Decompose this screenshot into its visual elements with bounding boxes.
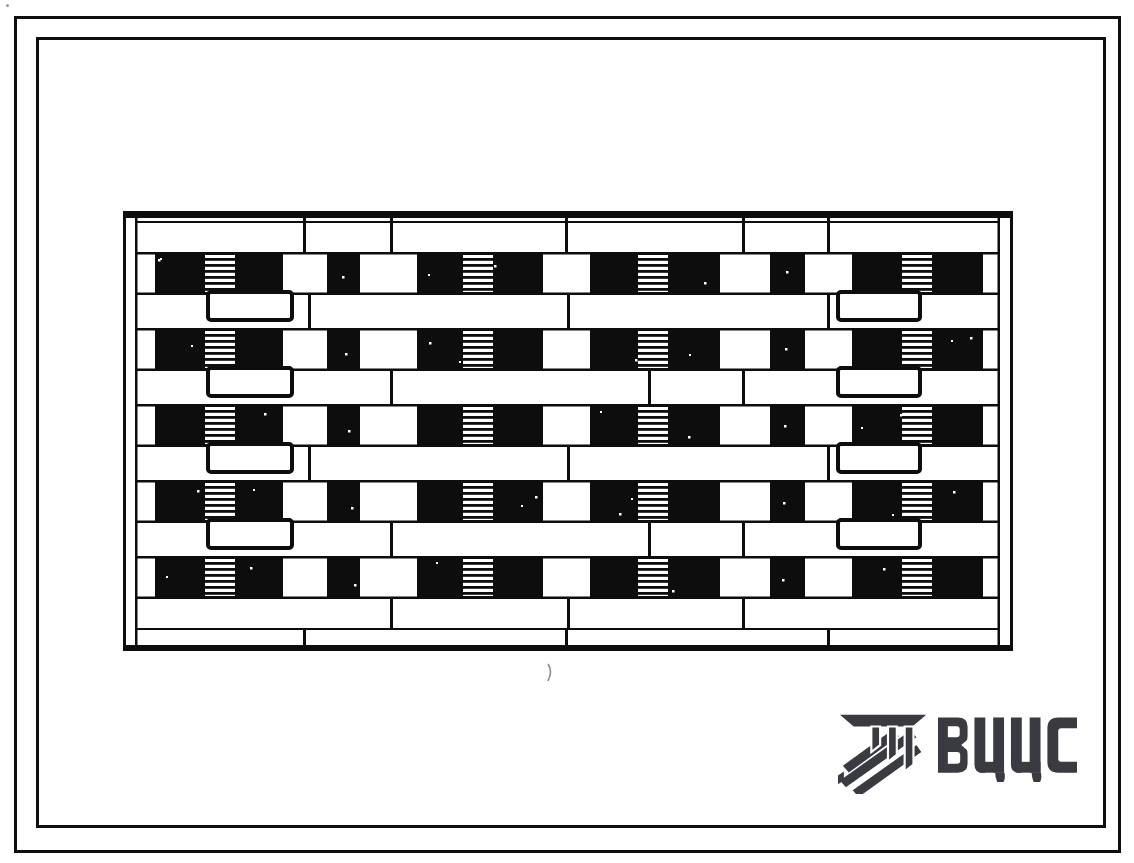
scan-speck (6, 4, 9, 7)
scanned-sheet (0, 0, 1134, 863)
logo-letter (1011, 717, 1041, 782)
balcony (208, 368, 292, 396)
logo-letter (938, 717, 968, 772)
logo-wordmark (938, 716, 1084, 784)
floor-row (137, 252, 1000, 295)
building-elevation-drawing (123, 211, 1013, 651)
scan-artifact-mark (544, 662, 558, 684)
balcony (208, 444, 292, 472)
balcony (838, 520, 920, 548)
floor-row (137, 404, 1000, 447)
balcony (208, 520, 292, 548)
logo-emblem-icon (838, 708, 930, 794)
floor-row (137, 480, 1000, 523)
floor-row (137, 328, 1000, 371)
balcony (838, 368, 920, 396)
logo-letter (1048, 717, 1078, 772)
publisher-logo (838, 708, 1084, 798)
balcony (838, 444, 920, 472)
balcony (838, 292, 920, 320)
balcony (208, 292, 292, 320)
floor-row (137, 556, 1000, 599)
building-elevation-svg (123, 211, 1013, 651)
logo-letter (975, 717, 1005, 782)
